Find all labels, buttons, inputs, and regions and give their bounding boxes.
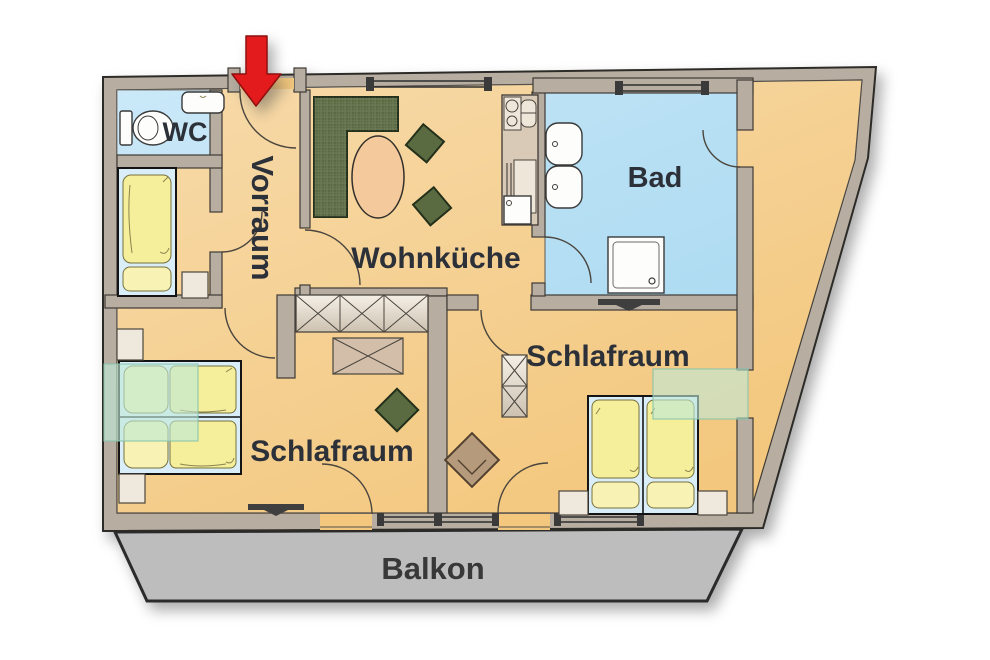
niche-nightstand	[182, 272, 208, 298]
room-label-bad: Bad	[628, 162, 683, 194]
room-label-wc: WC	[163, 117, 208, 147]
nightstand	[119, 474, 145, 503]
builtin-closet-icon	[296, 295, 428, 332]
tall-wardrobe-icon	[502, 355, 527, 417]
kitchen-unit-icon	[502, 95, 538, 225]
nightstand	[559, 491, 588, 515]
shower-icon	[608, 237, 664, 293]
dresser-icon	[333, 338, 403, 374]
glass-wardrobe-overlay	[653, 369, 748, 419]
wc-sink-icon	[182, 92, 224, 113]
floorplan-page: WC Vorraum Wohnküche Bad Schlafraum Schl…	[0, 0, 990, 660]
room-label-schlafraum-left: Schlafraum	[250, 435, 413, 468]
nightstand	[117, 329, 143, 360]
room-label-balkon: Balkon	[381, 551, 484, 586]
room-label-vorraum: Vorraum	[245, 155, 280, 280]
bath-sink-icon	[546, 123, 582, 165]
dining-table-icon	[352, 136, 404, 218]
glass-wardrobe-overlay	[104, 364, 198, 441]
room-label-schlafraum-right: Schlafraum	[526, 340, 689, 373]
floorplan-canvas: WC Vorraum Wohnküche Bad Schlafraum Schl…	[0, 0, 990, 660]
room-label-wohnkueche: Wohnküche	[351, 242, 520, 275]
bath-sink-icon	[546, 166, 582, 208]
toilet-tank-icon	[120, 111, 132, 145]
nightstand	[698, 491, 727, 515]
